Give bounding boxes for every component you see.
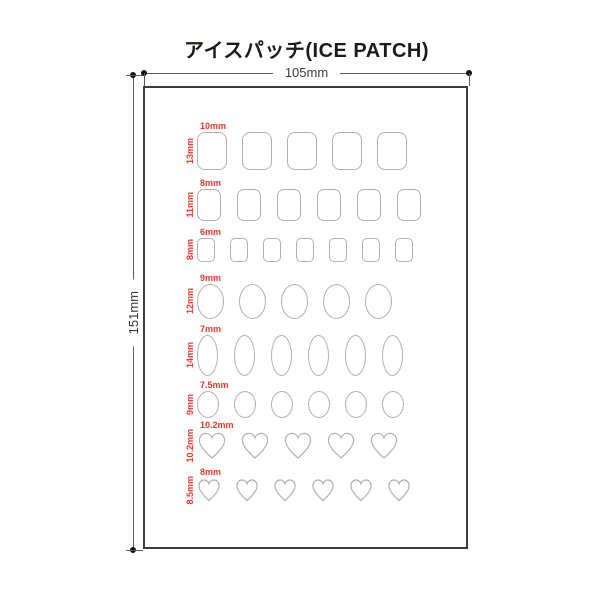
rounded-rect-shape (277, 189, 301, 221)
oval-shape (271, 335, 292, 376)
oval-shape (271, 391, 293, 418)
oval-shape (239, 284, 266, 319)
oval-shape (345, 391, 367, 418)
patch-sheet: 10mm13mm8mm11mm6mm8mm9mm12mm7mm14mm7.5mm… (143, 86, 468, 549)
height-label: 8.5mm (183, 478, 196, 503)
rounded-rect-shape (332, 132, 362, 170)
oval-shape (197, 391, 219, 418)
rounded-rect-shape (237, 189, 261, 221)
height-dimension-line (133, 75, 134, 550)
rounded-rect-shape (377, 132, 407, 170)
heart-shape (369, 431, 399, 461)
height-label: 11mm (183, 189, 196, 221)
heart-shape (387, 478, 411, 503)
height-label: 9mm (183, 391, 196, 418)
rounded-rect-shape (263, 238, 281, 262)
rounded-rect-shape (395, 238, 413, 262)
oval-shape (197, 335, 218, 376)
oval-shape (345, 335, 366, 376)
extension-line (126, 550, 143, 551)
oval-shape (234, 335, 255, 376)
height-label: 12mm (183, 284, 196, 319)
oval-shape (308, 335, 329, 376)
width-label: 8mm (200, 178, 221, 188)
oval-shape (382, 335, 403, 376)
heart-shape (311, 478, 335, 503)
width-label: 7.5mm (200, 380, 229, 390)
rounded-rect-shape (317, 189, 341, 221)
rounded-rect-shape (296, 238, 314, 262)
diagram-canvas: アイスパッチ(ICE PATCH) 105mm 151mm 10mm13mm8m… (0, 0, 600, 600)
height-label: 10.2mm (183, 431, 196, 461)
width-label: 7mm (200, 324, 221, 334)
rounded-rect-shape (242, 132, 272, 170)
height-label: 13mm (183, 132, 196, 170)
rounded-rect-shape (197, 189, 221, 221)
heart-shape (240, 431, 270, 461)
heart-shape (349, 478, 373, 503)
heart-shape (197, 478, 221, 503)
width-label: 10.2mm (200, 420, 234, 430)
rounded-rect-shape (397, 189, 421, 221)
oval-shape (197, 284, 224, 319)
page-title: アイスパッチ(ICE PATCH) (143, 34, 470, 63)
heart-shape (326, 431, 356, 461)
extension-line (144, 73, 145, 86)
width-label: 6mm (200, 227, 221, 237)
extension-line (126, 75, 143, 76)
height-label: 8mm (183, 238, 196, 262)
extension-line (469, 73, 470, 86)
width-label: 10mm (200, 121, 226, 131)
rounded-rect-shape (362, 238, 380, 262)
oval-shape (365, 284, 392, 319)
rounded-rect-shape (329, 238, 347, 262)
width-dimension-line (144, 73, 469, 74)
heart-shape (197, 431, 227, 461)
oval-shape (234, 391, 256, 418)
rounded-rect-shape (357, 189, 381, 221)
width-label: 9mm (200, 273, 221, 283)
oval-shape (281, 284, 308, 319)
heart-shape (283, 431, 313, 461)
width-label: 8mm (200, 467, 221, 477)
oval-shape (308, 391, 330, 418)
oval-shape (382, 391, 404, 418)
heart-shape (235, 478, 259, 503)
rounded-rect-shape (197, 132, 227, 170)
oval-shape (323, 284, 350, 319)
height-label: 14mm (183, 335, 196, 376)
heart-shape (273, 478, 297, 503)
rounded-rect-shape (230, 238, 248, 262)
rounded-rect-shape (287, 132, 317, 170)
rounded-rect-shape (197, 238, 215, 262)
